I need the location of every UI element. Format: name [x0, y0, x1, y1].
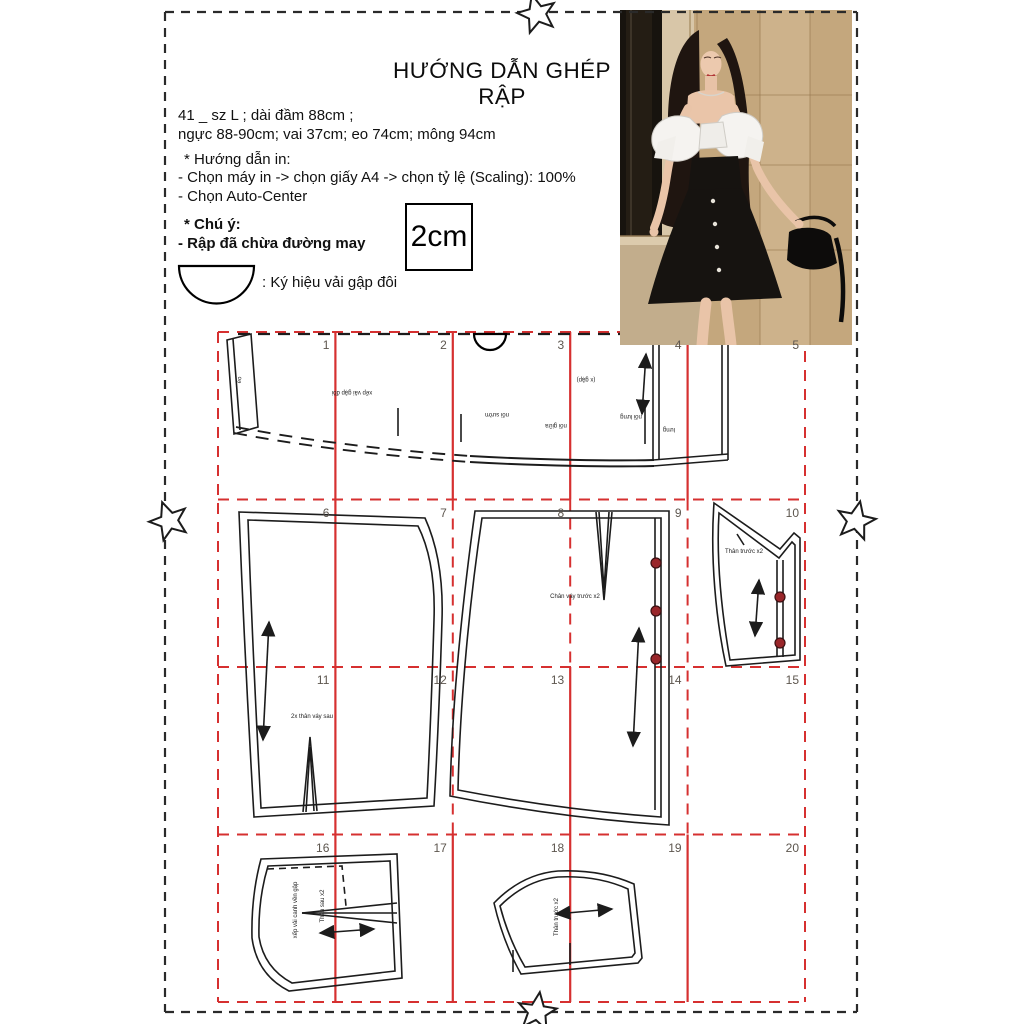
grid-cell-number: 4 [646, 338, 682, 352]
page-title: HƯỚNG DẪN GHÉP RẬP [381, 58, 623, 110]
page-tiling-grid [218, 332, 805, 1002]
button-mark [651, 606, 661, 616]
pattern-piece-label: 2x thân váy sau [291, 714, 333, 720]
print-instructions-header: * Hướng dẫn in: [184, 150, 291, 169]
pattern-piece-label: xếp vải canh vền gập [293, 882, 299, 939]
star-mark-top [513, 0, 559, 35]
grid-cell-number: 12 [411, 673, 447, 687]
pattern-piece-label: xếp vải gập đôi [332, 389, 372, 395]
grid-cell-number: 7 [411, 506, 447, 520]
grid-cell-number: 16 [293, 841, 329, 855]
button-marks [651, 558, 785, 664]
fold-notch-symbol [474, 334, 506, 350]
pattern-piece-label: Chân váy trước x2 [550, 594, 600, 600]
grid-cell-number: 5 [763, 338, 799, 352]
star-mark-bottom [516, 990, 559, 1024]
pattern-piece-label: (x gập) [577, 376, 596, 382]
grid-cell-number: 1 [293, 338, 329, 352]
grid-cell-number: 13 [528, 673, 564, 687]
button-mark [775, 638, 785, 648]
grainline-arrow [263, 622, 269, 740]
grid-cell-number: 2 [411, 338, 447, 352]
print-instruction-step2: - Chọn Auto-Center [178, 187, 307, 206]
pattern-piece-label: eo [237, 376, 244, 383]
grid-cell-number: 17 [411, 841, 447, 855]
size-info-line1: 41 _ sz L ; dài đầm 88cm ; [178, 106, 353, 125]
fold-symbol-caption: : Ký hiệu vải gập đôi [262, 274, 397, 291]
piece-back-skirt [239, 512, 442, 817]
grid-cell-number: 15 [763, 673, 799, 687]
note-line: - Rập đã chừa đường may [178, 234, 365, 253]
pattern-piece-label: nối lưng [620, 413, 642, 419]
grid-cell-number: 3 [528, 338, 564, 352]
grainline-arrow [633, 628, 639, 746]
grid-cell-number: 8 [528, 506, 564, 520]
button-mark [775, 592, 785, 602]
grainline-arrow [642, 354, 646, 414]
scale-test-box: 2cm [405, 203, 473, 271]
pattern-piece-label: Thân trước x2 [725, 549, 763, 555]
grid-cell-number: 18 [528, 841, 564, 855]
piece-front-bodice [494, 871, 642, 974]
grid-cell-number: 9 [646, 506, 682, 520]
grid-cell-number: 14 [646, 673, 682, 687]
pattern-piece-label: Thân trước x2 [554, 898, 560, 936]
print-instruction-step1: - Chọn máy in -> chọn giấy A4 -> chọn tỷ… [178, 168, 576, 187]
pattern-artwork [0, 0, 1024, 1024]
piece-waistband [227, 334, 728, 466]
pattern-piece-label: lưng [663, 426, 675, 432]
grainline-arrow [320, 929, 374, 933]
piece-front-panel [713, 503, 800, 666]
pattern-instruction-sheet: HƯỚNG DẪN GHÉP RẬP 41 _ sz L ; dài đầm 8… [0, 0, 1024, 1024]
button-mark [651, 654, 661, 664]
pattern-piece-label: nối giữa [545, 422, 567, 428]
scale-test-label: 2cm [411, 220, 468, 254]
grid-cell-number: 19 [646, 841, 682, 855]
piece-back-bodice [252, 854, 402, 991]
product-photo [620, 10, 852, 345]
grid-cell-number: 10 [763, 506, 799, 520]
button-mark [651, 558, 661, 568]
size-info-line2: ngực 88-90cm; vai 37cm; eo 74cm; mông 94… [178, 125, 496, 144]
grid-cell-number: 11 [293, 673, 329, 687]
pattern-piece-label: nối sườn [485, 411, 509, 417]
fold-legend-symbol [179, 266, 254, 304]
grainline-arrow [556, 909, 612, 914]
pattern-piece-label: Thân sau x2 [320, 889, 326, 922]
grid-cell-number: 20 [763, 841, 799, 855]
star-mark-right [834, 497, 879, 540]
grid-cell-number: 6 [293, 506, 329, 520]
note-header: * Chú ý: [184, 215, 241, 234]
grainline-arrow [755, 580, 759, 636]
star-mark-left [144, 496, 192, 543]
